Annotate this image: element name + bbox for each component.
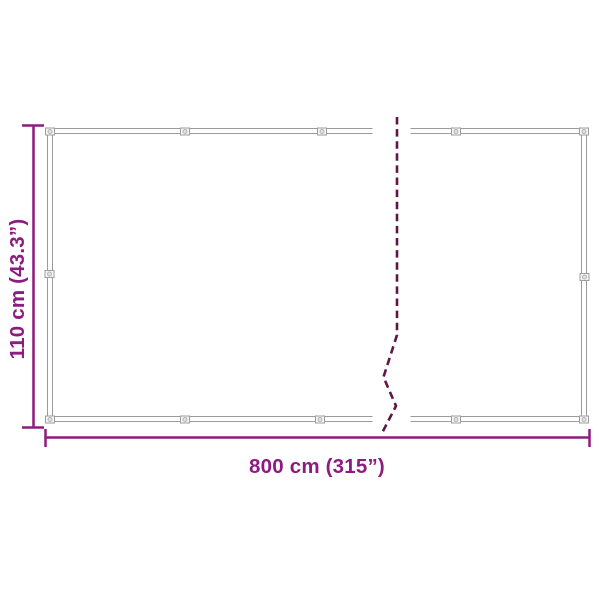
width-dimension-label: 800 cm (315”) bbox=[249, 455, 385, 478]
frame-outline bbox=[48, 129, 587, 422]
eyelet-icon bbox=[46, 416, 55, 423]
eyelet-icon bbox=[580, 416, 589, 423]
eyelet-icon bbox=[580, 274, 589, 281]
eyelet-icon bbox=[181, 416, 190, 423]
eyelet-icon bbox=[580, 128, 589, 135]
dimension-diagram-canvas: 110 cm (43.3”) 800 cm (315”) bbox=[0, 0, 600, 600]
eyelet-icon bbox=[318, 128, 327, 135]
product-diagram: 110 cm (43.3”) 800 cm (315”) bbox=[0, 0, 600, 600]
eyelet-icon bbox=[181, 128, 190, 135]
length-break-gap bbox=[373, 115, 411, 431]
width-dimension: 800 cm (315”) bbox=[45, 429, 590, 478]
eyelet-icon bbox=[452, 416, 461, 423]
frame-outer-rect bbox=[48, 129, 587, 422]
eyelet-icon bbox=[45, 271, 54, 278]
eyelets bbox=[45, 128, 589, 423]
eyelet-icon bbox=[316, 416, 325, 423]
eyelet-icon bbox=[452, 128, 461, 135]
frame-inner-rect bbox=[53, 134, 582, 417]
eyelet-icon bbox=[46, 128, 55, 135]
height-dimension-label: 110 cm (43.3”) bbox=[6, 219, 29, 360]
height-dimension: 110 cm (43.3”) bbox=[6, 125, 44, 428]
